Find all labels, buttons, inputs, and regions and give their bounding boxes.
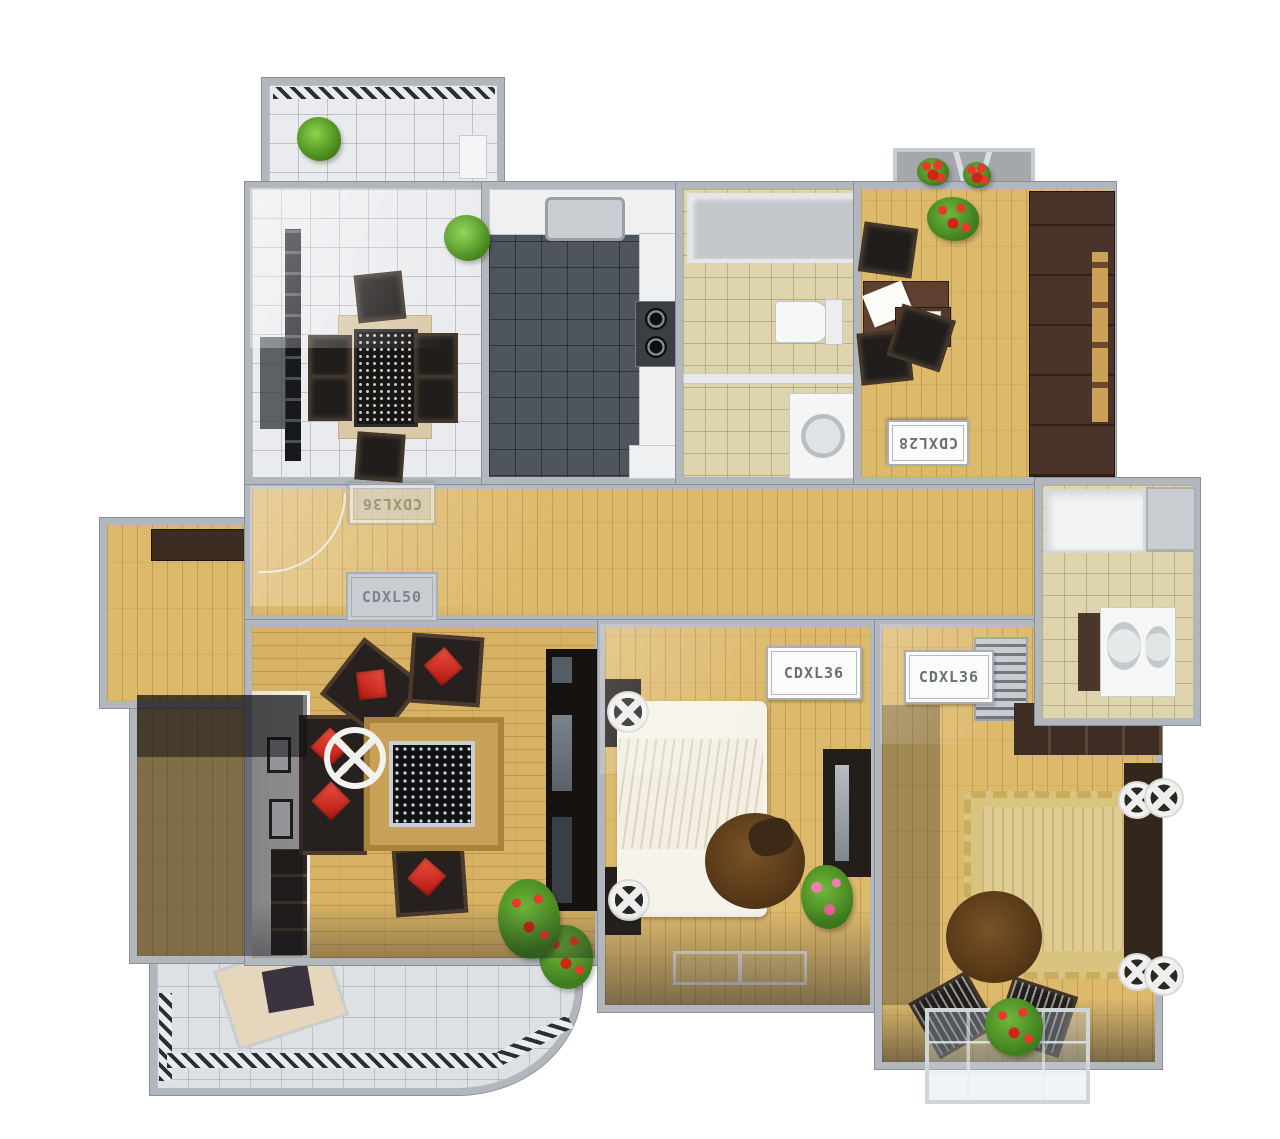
bed2-wheel-decor [1144, 956, 1184, 996]
bed-wheel-decor [608, 879, 650, 921]
toilet [775, 301, 829, 343]
window-box-plant [963, 162, 991, 188]
balcony-railing-bottom [167, 1053, 502, 1068]
dining-plant [444, 215, 490, 261]
terrace-balcony [262, 78, 504, 190]
bedroom1-ac-label: CDXL36 [766, 646, 862, 700]
study-ac-text: CDXL28 [898, 434, 958, 452]
tv-screen [552, 715, 572, 791]
living-room [245, 620, 602, 965]
stove-burner [645, 308, 667, 330]
stove-burner [645, 336, 667, 358]
ensuite-bathroom [1035, 478, 1200, 725]
dining-chair [354, 271, 407, 324]
washer-door [801, 414, 845, 458]
armchair [392, 845, 469, 918]
glass-table-bay [925, 1008, 1090, 1104]
bedroom1-tv-screen [835, 765, 849, 861]
vanity-basin [1145, 626, 1171, 668]
picture-frame [269, 799, 293, 839]
dining-chair [414, 333, 458, 379]
armchair-cushion-red [423, 647, 463, 687]
door-mat [739, 951, 807, 985]
shoe-cabinet [151, 529, 249, 561]
window-box-plant [917, 158, 949, 186]
hall-ac-label: CDXL50 [346, 572, 438, 622]
lounge-cushion [262, 964, 315, 1013]
bathtub [687, 193, 861, 263]
dining-chair [308, 335, 352, 379]
door-mat [673, 951, 741, 985]
dining-chair [308, 375, 352, 421]
bedroom1-tv-console [823, 749, 871, 877]
study-ac-label: CDXL28 [887, 420, 969, 466]
washing-machine [789, 393, 857, 479]
bedroom2-ac-text: CDXL36 [919, 668, 979, 686]
bed2-wheel-decor [1144, 778, 1184, 818]
armchair [408, 633, 485, 708]
kitchen-counter-corner [629, 445, 679, 479]
coffee-table [389, 741, 475, 827]
curved-balcony [150, 948, 582, 1095]
tv-wall-unit [546, 649, 598, 911]
vanity [1100, 607, 1176, 697]
dining-partition-screen [285, 229, 301, 461]
kitchen [482, 182, 684, 484]
entry-foyer [100, 518, 257, 708]
terrace-pillar [459, 135, 487, 179]
toilet-tank [825, 299, 843, 345]
vanity-basin [1107, 622, 1141, 670]
round-rug [705, 813, 805, 909]
apartment-model-photo: CDXL36 CDXL36 CDXL36 CD [0, 0, 1280, 1139]
armchair-cushion-red [356, 669, 387, 700]
kitchen-sink [545, 197, 625, 241]
hall-ac-mirrored-text: CDXL36 [362, 495, 422, 513]
hall-cabinet [271, 849, 307, 955]
dining-room [245, 182, 490, 484]
ceiling-fan [324, 727, 386, 789]
bathroom-divider [683, 373, 857, 384]
office-chair [858, 221, 918, 278]
study-plant [927, 197, 979, 241]
hall-ac-label-mirrored: CDXL36 [348, 483, 436, 525]
armchair-cushion-red [407, 857, 447, 897]
bedroom1-plant [801, 865, 853, 929]
bed-wheel-decor [607, 691, 649, 733]
living-plant [498, 879, 560, 959]
tv-speaker [552, 657, 572, 683]
rug-stool [745, 814, 797, 860]
bedroom2-ac-label: CDXL36 [904, 650, 994, 704]
ensuite-shower [1146, 487, 1196, 551]
dining-table [354, 329, 418, 427]
kitchen-stove [635, 301, 679, 367]
terrace-plant [297, 117, 341, 161]
hall-ac-text: CDXL50 [362, 588, 422, 606]
glass-partition-arc [258, 493, 346, 573]
dining-chair [414, 375, 458, 423]
dining-chair [354, 431, 405, 482]
balcony-railing-curve [496, 1015, 573, 1065]
round-rug-2 [946, 891, 1042, 983]
wardrobe-accent [1092, 252, 1108, 422]
bedroom1-ac-text: CDXL36 [784, 664, 844, 682]
side-chair [260, 337, 286, 429]
terrace-railing [273, 87, 495, 99]
study-wardrobe [1029, 191, 1115, 477]
tv-cabinet-panel [552, 817, 572, 903]
picture-frame [267, 737, 291, 773]
bathroom [676, 182, 862, 484]
ensuite-bathtub [1044, 489, 1146, 553]
glass-table-plant [985, 998, 1043, 1056]
